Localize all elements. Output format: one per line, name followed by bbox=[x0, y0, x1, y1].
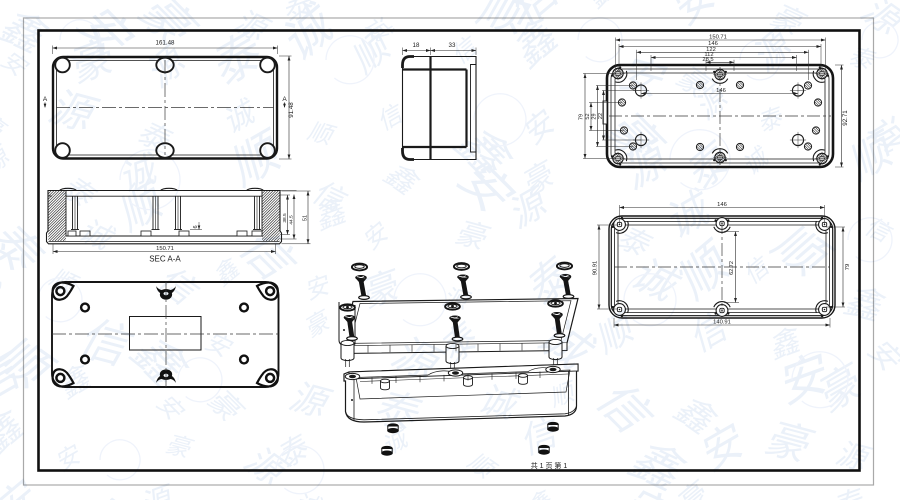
svg-text:150.71: 150.71 bbox=[709, 35, 727, 41]
svg-text:91.48: 91.48 bbox=[288, 102, 295, 118]
svg-text:90.91: 90.91 bbox=[593, 261, 599, 276]
svg-text:22: 22 bbox=[598, 113, 604, 119]
svg-text:泰: 泰 bbox=[828, 484, 870, 500]
svg-text:18: 18 bbox=[413, 42, 420, 49]
svg-text:79: 79 bbox=[579, 114, 585, 120]
svg-text:顺: 顺 bbox=[463, 448, 501, 486]
svg-text:鑫: 鑫 bbox=[0, 403, 33, 460]
svg-text:鑫: 鑫 bbox=[579, 0, 626, 14]
svg-text:安: 安 bbox=[301, 271, 336, 306]
svg-text:52: 52 bbox=[585, 113, 591, 119]
svg-text:源: 源 bbox=[0, 141, 17, 180]
svg-text:6: 6 bbox=[193, 225, 199, 228]
svg-text:豪: 豪 bbox=[451, 216, 493, 257]
svg-text:顺: 顺 bbox=[371, 497, 430, 500]
svg-text:泰: 泰 bbox=[0, 211, 51, 286]
svg-text:安: 安 bbox=[151, 389, 189, 427]
svg-text:豪: 豪 bbox=[162, 431, 196, 464]
svg-text:诚: 诚 bbox=[291, 490, 325, 500]
svg-text:鑫: 鑫 bbox=[523, 486, 561, 500]
svg-text:29: 29 bbox=[592, 113, 598, 119]
svg-text:源: 源 bbox=[854, 0, 900, 46]
svg-text:顺: 顺 bbox=[304, 118, 338, 151]
svg-text:鑫: 鑫 bbox=[840, 279, 889, 329]
svg-text:A: A bbox=[282, 96, 287, 103]
svg-text:豪: 豪 bbox=[0, 108, 11, 146]
svg-text:51: 51 bbox=[303, 215, 309, 221]
svg-text:A: A bbox=[43, 96, 48, 103]
svg-text:38.5: 38.5 bbox=[282, 213, 288, 223]
svg-text:安: 安 bbox=[661, 0, 726, 34]
svg-text:安: 安 bbox=[0, 472, 49, 500]
svg-text:79: 79 bbox=[845, 264, 851, 270]
svg-text:鑫: 鑫 bbox=[378, 157, 425, 204]
svg-text:安: 安 bbox=[861, 333, 900, 380]
svg-text:92.71: 92.71 bbox=[842, 110, 849, 126]
svg-text:源: 源 bbox=[285, 375, 336, 425]
svg-text:共 1 页 第 1: 共 1 页 第 1 bbox=[531, 461, 568, 470]
svg-text:28.5: 28.5 bbox=[702, 57, 713, 63]
svg-text:44.5: 44.5 bbox=[289, 215, 295, 225]
svg-text:安: 安 bbox=[358, 218, 396, 256]
svg-text:安: 安 bbox=[516, 105, 562, 151]
svg-text:豪: 豪 bbox=[201, 383, 249, 431]
svg-text:豪: 豪 bbox=[300, 306, 338, 343]
svg-text:150.71: 150.71 bbox=[156, 246, 174, 252]
svg-text:源: 源 bbox=[136, 481, 180, 500]
svg-text:豪: 豪 bbox=[760, 413, 819, 471]
svg-text:146: 146 bbox=[717, 202, 727, 208]
svg-text:豪: 豪 bbox=[670, 476, 718, 500]
